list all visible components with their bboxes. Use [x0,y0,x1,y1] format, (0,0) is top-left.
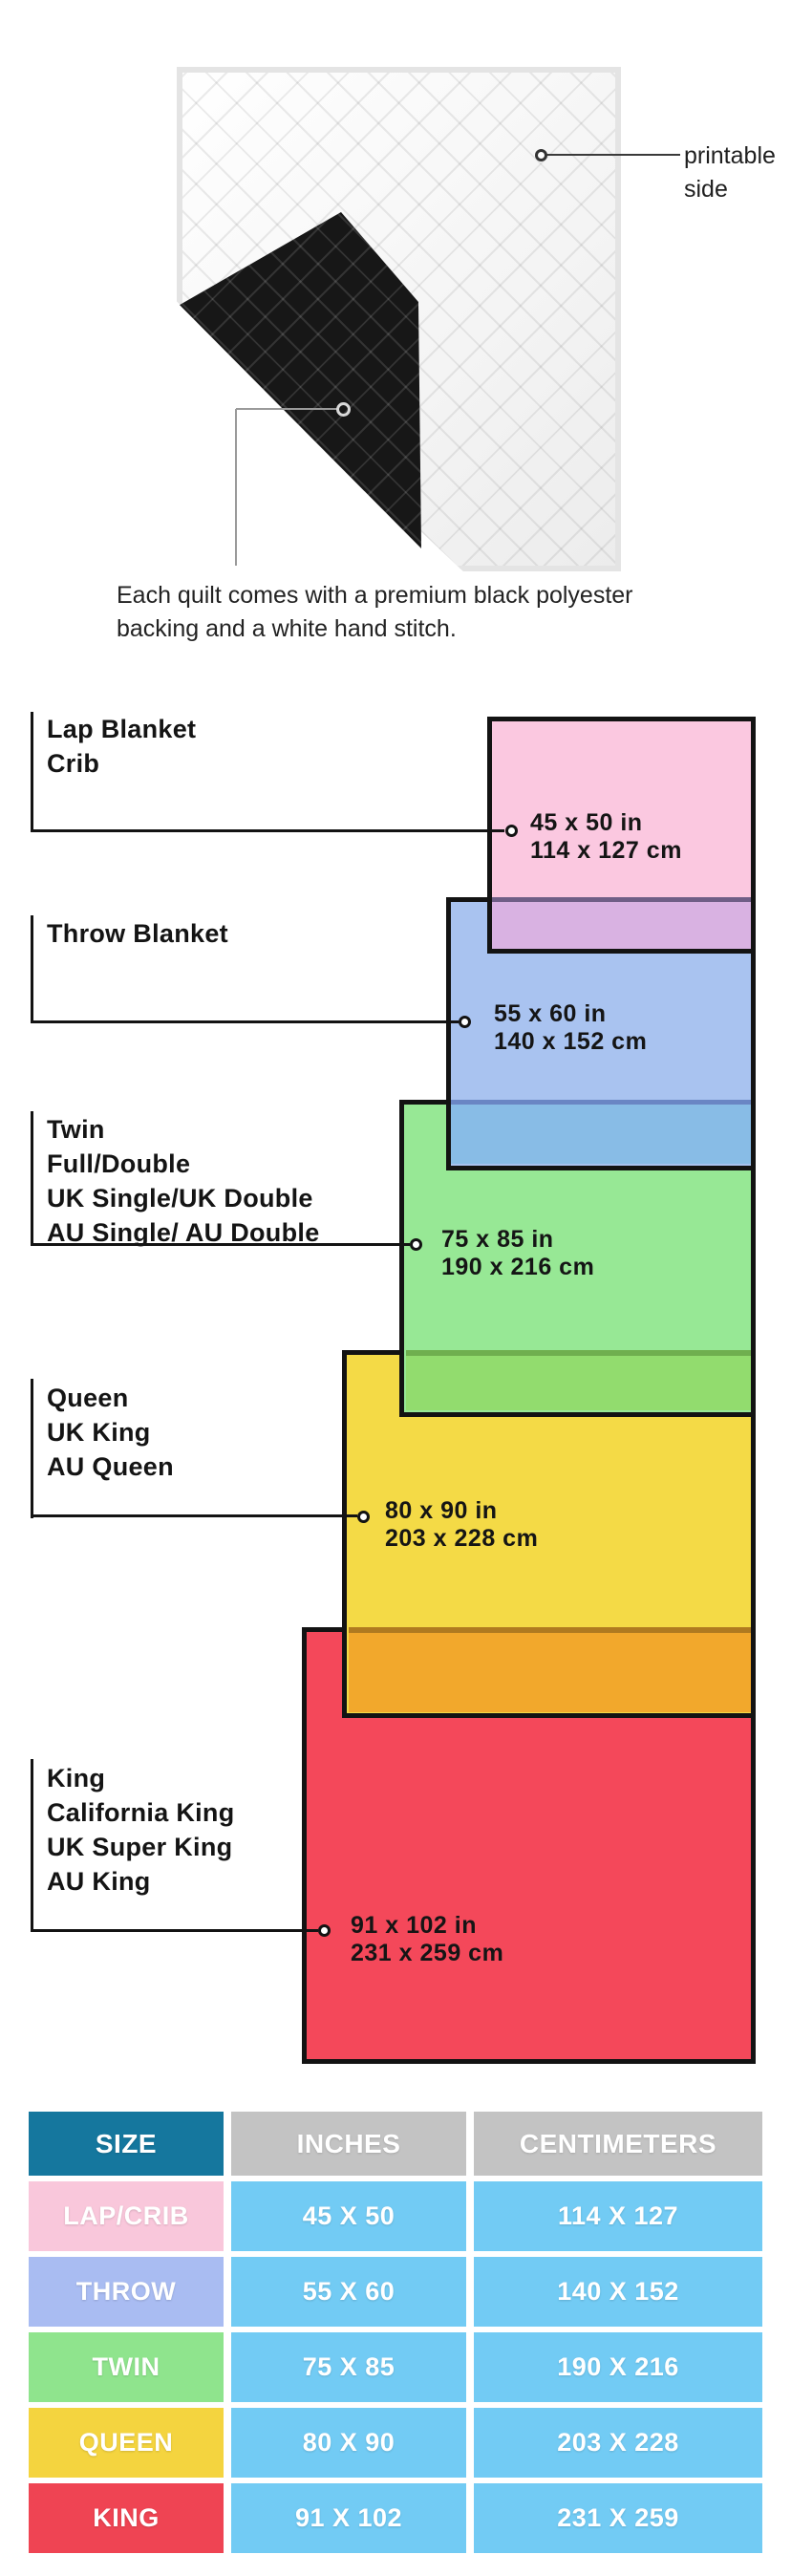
dimension-cm: 140 x 152 cm [494,1028,647,1056]
printable-side-label: printable side [684,140,776,206]
table-header-row: SIZE INCHES CENTIMETERS [29,2112,762,2176]
dimension-inches: 80 x 90 in [385,1497,538,1525]
queen-dimensions: 80 x 90 in 203 x 228 cm [385,1497,538,1553]
row-label: THROW [29,2257,224,2327]
heading-line: UK Single/UK Double [47,1181,320,1215]
pink-blue-overlap [492,902,751,949]
heading-line: AU King [47,1864,235,1899]
row-cm: 231 X 259 [474,2483,762,2553]
queen-heading: Queen UK King AU Queen [47,1381,174,1484]
row-inches: 91 X 102 [231,2483,466,2553]
king-leader-horizontal [31,1929,318,1932]
heading-line: AU Queen [47,1449,174,1484]
backing-leader-line-vertical [235,409,237,566]
dimension-cm: 114 x 127 cm [530,837,682,865]
green-yellow-overlap [406,1356,751,1410]
table-row: LAP/CRIB 45 X 50 114 X 127 [29,2181,762,2251]
infographic-page: printable side Each quilt comes with a p… [0,0,791,2576]
printable-side-leader-line [546,154,680,156]
dimension-cm: 231 x 259 cm [351,1940,503,1967]
row-label: LAP/CRIB [29,2181,224,2251]
row-label: KING [29,2483,224,2553]
heading-line: Throw Blanket [47,916,228,951]
row-inches: 80 X 90 [231,2408,466,2478]
dimension-inches: 55 x 60 in [494,1000,647,1028]
row-label: TWIN [29,2332,224,2402]
row-inches: 55 X 60 [231,2257,466,2327]
quilt-caption-line2: backing and a white hand stitch. [117,612,633,646]
queen-leader-horizontal [31,1514,357,1517]
yellow-red-overlap [349,1633,751,1712]
king-dimensions: 91 x 102 in 231 x 259 cm [351,1912,503,1967]
row-inches: 75 X 85 [231,2332,466,2402]
backing-marker-icon [336,402,351,417]
twin-heading: Twin Full/Double UK Single/UK Double AU … [47,1112,320,1250]
row-cm: 190 X 216 [474,2332,762,2402]
throw-leader-horizontal [31,1020,459,1023]
heading-line: Twin [47,1112,320,1147]
dimension-cm: 190 x 216 cm [441,1254,594,1281]
heading-line: Queen [47,1381,174,1415]
dimension-inches: 91 x 102 in [351,1912,503,1940]
throw-heading: Throw Blanket [47,916,228,951]
heading-line: Full/Double [47,1147,320,1181]
twin-leader-vertical [31,1111,33,1246]
lap-marker-icon [505,825,518,837]
header-centimeters: CENTIMETERS [474,2112,762,2176]
blue-green-overlap [451,1105,751,1164]
heading-line: AU Single/ AU Double [47,1215,320,1250]
twin-dimensions: 75 x 85 in 190 x 216 cm [441,1226,594,1281]
printable-side-label-line2: side [684,173,776,206]
king-leader-vertical [31,1759,33,1932]
backing-leader-line-horizontal [236,408,337,410]
table-row: QUEEN 80 X 90 203 X 228 [29,2408,762,2478]
throw-marker-icon [459,1016,471,1028]
king-marker-icon [318,1924,331,1937]
table-row: TWIN 75 X 85 190 X 216 [29,2332,762,2402]
row-cm: 140 X 152 [474,2257,762,2327]
dimension-inches: 45 x 50 in [530,809,682,837]
dimension-cm: 203 x 228 cm [385,1525,538,1553]
heading-line: Crib [47,746,196,781]
row-label: QUEEN [29,2408,224,2478]
dimension-inches: 75 x 85 in [441,1226,594,1254]
throw-dimensions: 55 x 60 in 140 x 152 cm [494,1000,647,1056]
header-inches: INCHES [231,2112,466,2176]
row-cm: 203 X 228 [474,2408,762,2478]
heading-line: King [47,1761,235,1795]
lap-crib-heading: Lap Blanket Crib [47,712,196,781]
size-table: SIZE INCHES CENTIMETERS LAP/CRIB 45 X 50… [29,2112,762,2553]
queen-marker-icon [357,1511,370,1523]
header-size: SIZE [29,2112,224,2176]
king-heading: King California King UK Super King AU Ki… [47,1761,235,1899]
row-inches: 45 X 50 [231,2181,466,2251]
row-cm: 114 X 127 [474,2181,762,2251]
heading-line: Lap Blanket [47,712,196,746]
heading-line: UK King [47,1415,174,1449]
lap-leader-horizontal [31,829,504,832]
queen-leader-vertical [31,1379,33,1518]
quilt-caption-line1: Each quilt comes with a premium black po… [117,579,633,612]
table-row: KING 91 X 102 231 X 259 [29,2483,762,2553]
throw-leader-vertical [31,915,33,1023]
twin-marker-icon [410,1238,422,1251]
heading-line: California King [47,1795,235,1830]
lap-leader-vertical [31,712,33,832]
lap-dimensions: 45 x 50 in 114 x 127 cm [530,809,682,865]
heading-line: UK Super King [47,1830,235,1864]
table-row: THROW 55 X 60 140 X 152 [29,2257,762,2327]
quilt-caption: Each quilt comes with a premium black po… [117,579,633,646]
printable-side-label-line1: printable [684,140,776,173]
printable-side-marker-icon [535,149,547,161]
